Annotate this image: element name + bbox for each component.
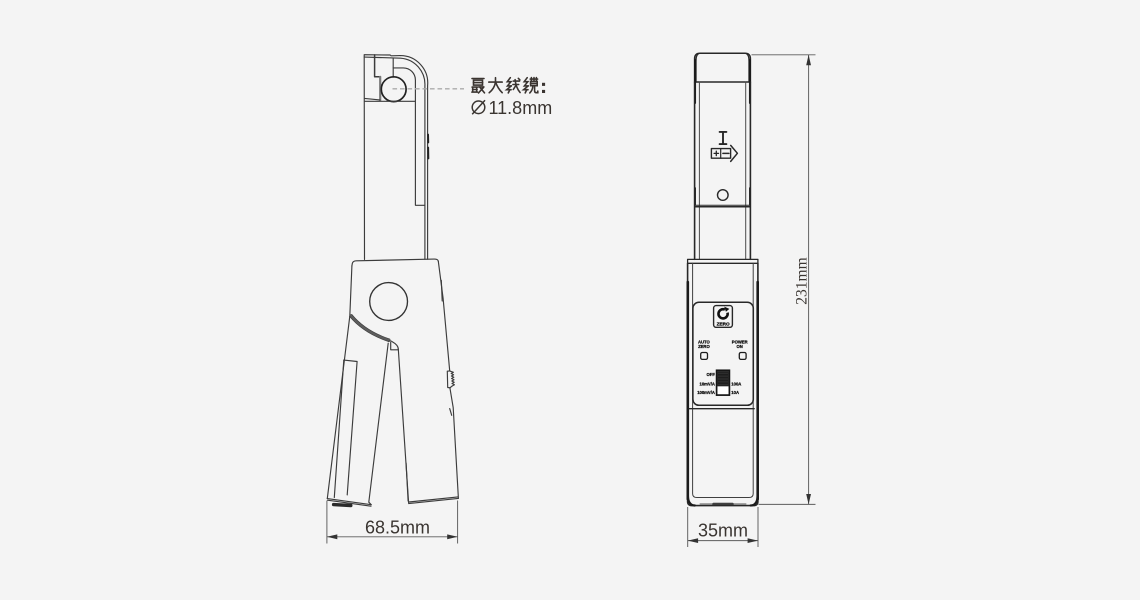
svg-text:231mm: 231mm <box>794 257 811 304</box>
svg-text:68.5mm: 68.5mm <box>365 518 430 538</box>
svg-text:OFF: OFF <box>707 372 716 377</box>
svg-text:ON: ON <box>737 344 743 349</box>
svg-text:ZERO: ZERO <box>698 344 710 349</box>
svg-text:100mV/A: 100mV/A <box>697 390 715 395</box>
svg-text:10mV/A: 10mV/A <box>700 381 715 386</box>
svg-text:11.8mm: 11.8mm <box>489 98 553 118</box>
svg-text:35mm: 35mm <box>698 520 748 540</box>
svg-text:100A: 100A <box>731 381 741 386</box>
svg-text:ZERO: ZERO <box>717 322 730 327</box>
svg-text:10A: 10A <box>731 390 739 395</box>
